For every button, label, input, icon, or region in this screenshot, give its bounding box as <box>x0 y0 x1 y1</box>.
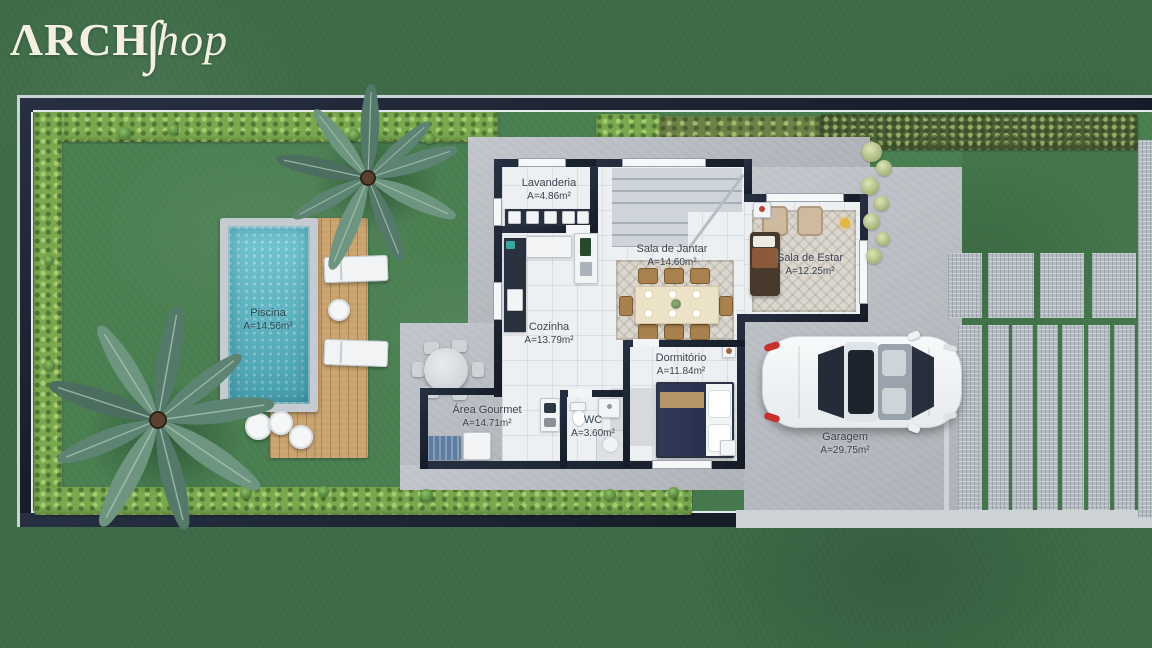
shrub-tuft <box>168 124 179 135</box>
label-area-gourmet: Área Gourmet A=14.71m² <box>452 404 521 430</box>
paver-strip <box>1114 325 1135 510</box>
paver-strip <box>1092 253 1136 318</box>
palm-tree-icon <box>263 73 473 283</box>
nightstand-decor <box>726 348 732 354</box>
kitchen-oven <box>580 238 591 256</box>
logo-swash-s: ∫ <box>145 9 161 74</box>
washing-machine <box>562 211 575 224</box>
archshop-logo: ΛRCH∫hop <box>10 2 228 69</box>
wall <box>560 390 567 468</box>
dining-chair <box>690 268 710 284</box>
label-cozinha: Cozinha A=13.79m² <box>524 321 573 347</box>
car-windshield <box>912 346 934 418</box>
armchair <box>797 206 823 236</box>
room-area: A=14.56m² <box>243 321 292 334</box>
dining-chair <box>690 324 710 340</box>
window <box>766 193 844 202</box>
wall <box>420 388 428 469</box>
dining-chair <box>638 324 658 340</box>
label-garagem: Garagem A=29.75m² <box>820 431 869 457</box>
window <box>652 460 712 469</box>
room-area: A=12.25m² <box>777 266 843 279</box>
room-area: A=3.60m² <box>571 428 615 441</box>
flower-bush <box>861 177 879 195</box>
paver-strip <box>948 253 982 318</box>
gourmet-sink-basin <box>544 403 556 413</box>
flower-bush <box>876 232 890 246</box>
lounger-backrest-line <box>340 341 343 363</box>
sofa-pillow <box>753 236 775 247</box>
room-area: A=14.71m² <box>452 418 521 431</box>
dining-chair <box>619 296 633 316</box>
room-area: A=11.84m² <box>656 366 707 379</box>
gourmet-fridge <box>463 432 491 460</box>
table-plate <box>693 291 700 298</box>
room-name: WC <box>571 414 615 428</box>
wall <box>590 166 598 233</box>
door-wc <box>568 389 592 397</box>
wall <box>494 159 502 397</box>
paver-strip <box>988 325 1009 510</box>
room-area: A=29.75m² <box>820 445 869 458</box>
driveway-curb <box>944 420 949 510</box>
paver-strip <box>1062 325 1084 510</box>
washing-machine <box>577 211 589 224</box>
table-plate <box>669 310 676 317</box>
car-seat <box>882 388 906 414</box>
wall <box>737 314 745 468</box>
sun-lounger <box>324 339 389 367</box>
bed-throw <box>660 392 704 408</box>
kitchen-counter-left <box>504 238 526 332</box>
window <box>493 198 502 226</box>
kitchen-microwave <box>580 262 592 276</box>
paver-edge-right <box>1138 140 1152 518</box>
flower-bush <box>876 160 892 176</box>
wall <box>420 388 502 395</box>
dining-chair <box>719 296 733 316</box>
shrub-tuft <box>118 127 131 140</box>
room-area: A=13.79m² <box>524 335 573 348</box>
wall <box>744 314 868 322</box>
room-name: Cozinha <box>524 321 573 335</box>
outdoor-chair <box>412 362 424 377</box>
paver-strip <box>1012 325 1033 510</box>
shrub-tuft <box>420 489 433 502</box>
sofa-throw <box>752 248 778 268</box>
car-trunk-line <box>798 346 800 418</box>
washing-machine <box>508 211 521 224</box>
label-dormitorio: Dormitório A=11.84m² <box>656 352 707 378</box>
logo-arch-text: ΛRCH <box>10 14 149 65</box>
room-name: Dormitório <box>656 352 707 366</box>
wall <box>623 340 630 468</box>
table-centerpiece-plant <box>671 299 681 309</box>
gourmet-cabinet <box>427 436 461 460</box>
label-sala-de-jantar: Sala de Jantar A=14.60m² <box>637 243 708 269</box>
car-hood-line <box>928 348 930 416</box>
window <box>493 282 502 320</box>
table-plate <box>645 310 652 317</box>
car-sunroof <box>848 350 874 414</box>
flower-bush <box>866 248 882 264</box>
room-area: A=4.86m² <box>522 191 576 204</box>
shrub-tuft <box>604 489 616 501</box>
shrub-tuft <box>668 487 679 498</box>
kitchen-island <box>526 236 572 258</box>
table-plate <box>645 291 652 298</box>
wc-sink-faucet <box>607 404 612 409</box>
outdoor-round-table <box>424 348 468 392</box>
plant-flower <box>759 206 765 212</box>
kitchen-cooktop <box>506 241 515 249</box>
room-area: A=14.60m² <box>637 257 708 270</box>
window <box>518 158 566 167</box>
washing-machine <box>526 211 539 224</box>
room-name: Área Gourmet <box>452 404 521 418</box>
outdoor-chair <box>472 362 484 377</box>
logo-hop-text: hop <box>156 14 228 65</box>
paver-strip <box>1088 325 1110 510</box>
pouf <box>289 425 313 449</box>
label-piscina: Piscina A=14.56m² <box>243 307 292 333</box>
flower-bush <box>862 142 882 162</box>
paver-strip <box>1037 325 1058 510</box>
floor-lamp <box>840 218 850 228</box>
floor-plan-render: Lavanderia A=4.86m² Sala de Jantar A=14.… <box>0 0 1152 648</box>
dining-chair <box>638 268 658 284</box>
label-wc: WC A=3.60m² <box>571 414 615 440</box>
door-laundry <box>566 225 590 233</box>
car-rear-window <box>818 344 844 420</box>
flower-bush <box>874 196 889 211</box>
shrub-tuft <box>44 255 54 265</box>
side-table <box>328 299 350 321</box>
paver-strip <box>1040 253 1084 318</box>
staircase-lower-flight <box>612 212 688 247</box>
label-sala-de-estar: Sala de Estar A=12.25m² <box>777 252 843 278</box>
bed-pillow <box>708 390 731 418</box>
paver-strip <box>988 253 1034 318</box>
washing-machine <box>544 211 557 224</box>
shrub-tuft <box>318 486 329 497</box>
gourmet-sink-basin <box>544 418 556 427</box>
dining-chair <box>664 324 684 340</box>
room-name: Piscina <box>243 307 292 321</box>
car-seat <box>882 350 906 376</box>
flower-bush <box>863 213 880 230</box>
window <box>622 158 706 167</box>
door-bedroom <box>633 339 659 347</box>
car <box>762 336 962 428</box>
room-name: Lavanderia <box>522 177 576 191</box>
bedroom-shelf <box>720 440 736 456</box>
table-plate <box>693 310 700 317</box>
dining-chair <box>664 268 684 284</box>
room-name: Sala de Estar <box>777 252 843 266</box>
entrance-sidewalk <box>736 510 1152 528</box>
label-lavanderia: Lavanderia A=4.86m² <box>522 177 576 203</box>
table-plate <box>669 291 676 298</box>
kitchen-sink <box>507 289 523 311</box>
room-name: Sala de Jantar <box>637 243 708 257</box>
window <box>859 240 868 304</box>
room-name: Garagem <box>820 431 869 445</box>
